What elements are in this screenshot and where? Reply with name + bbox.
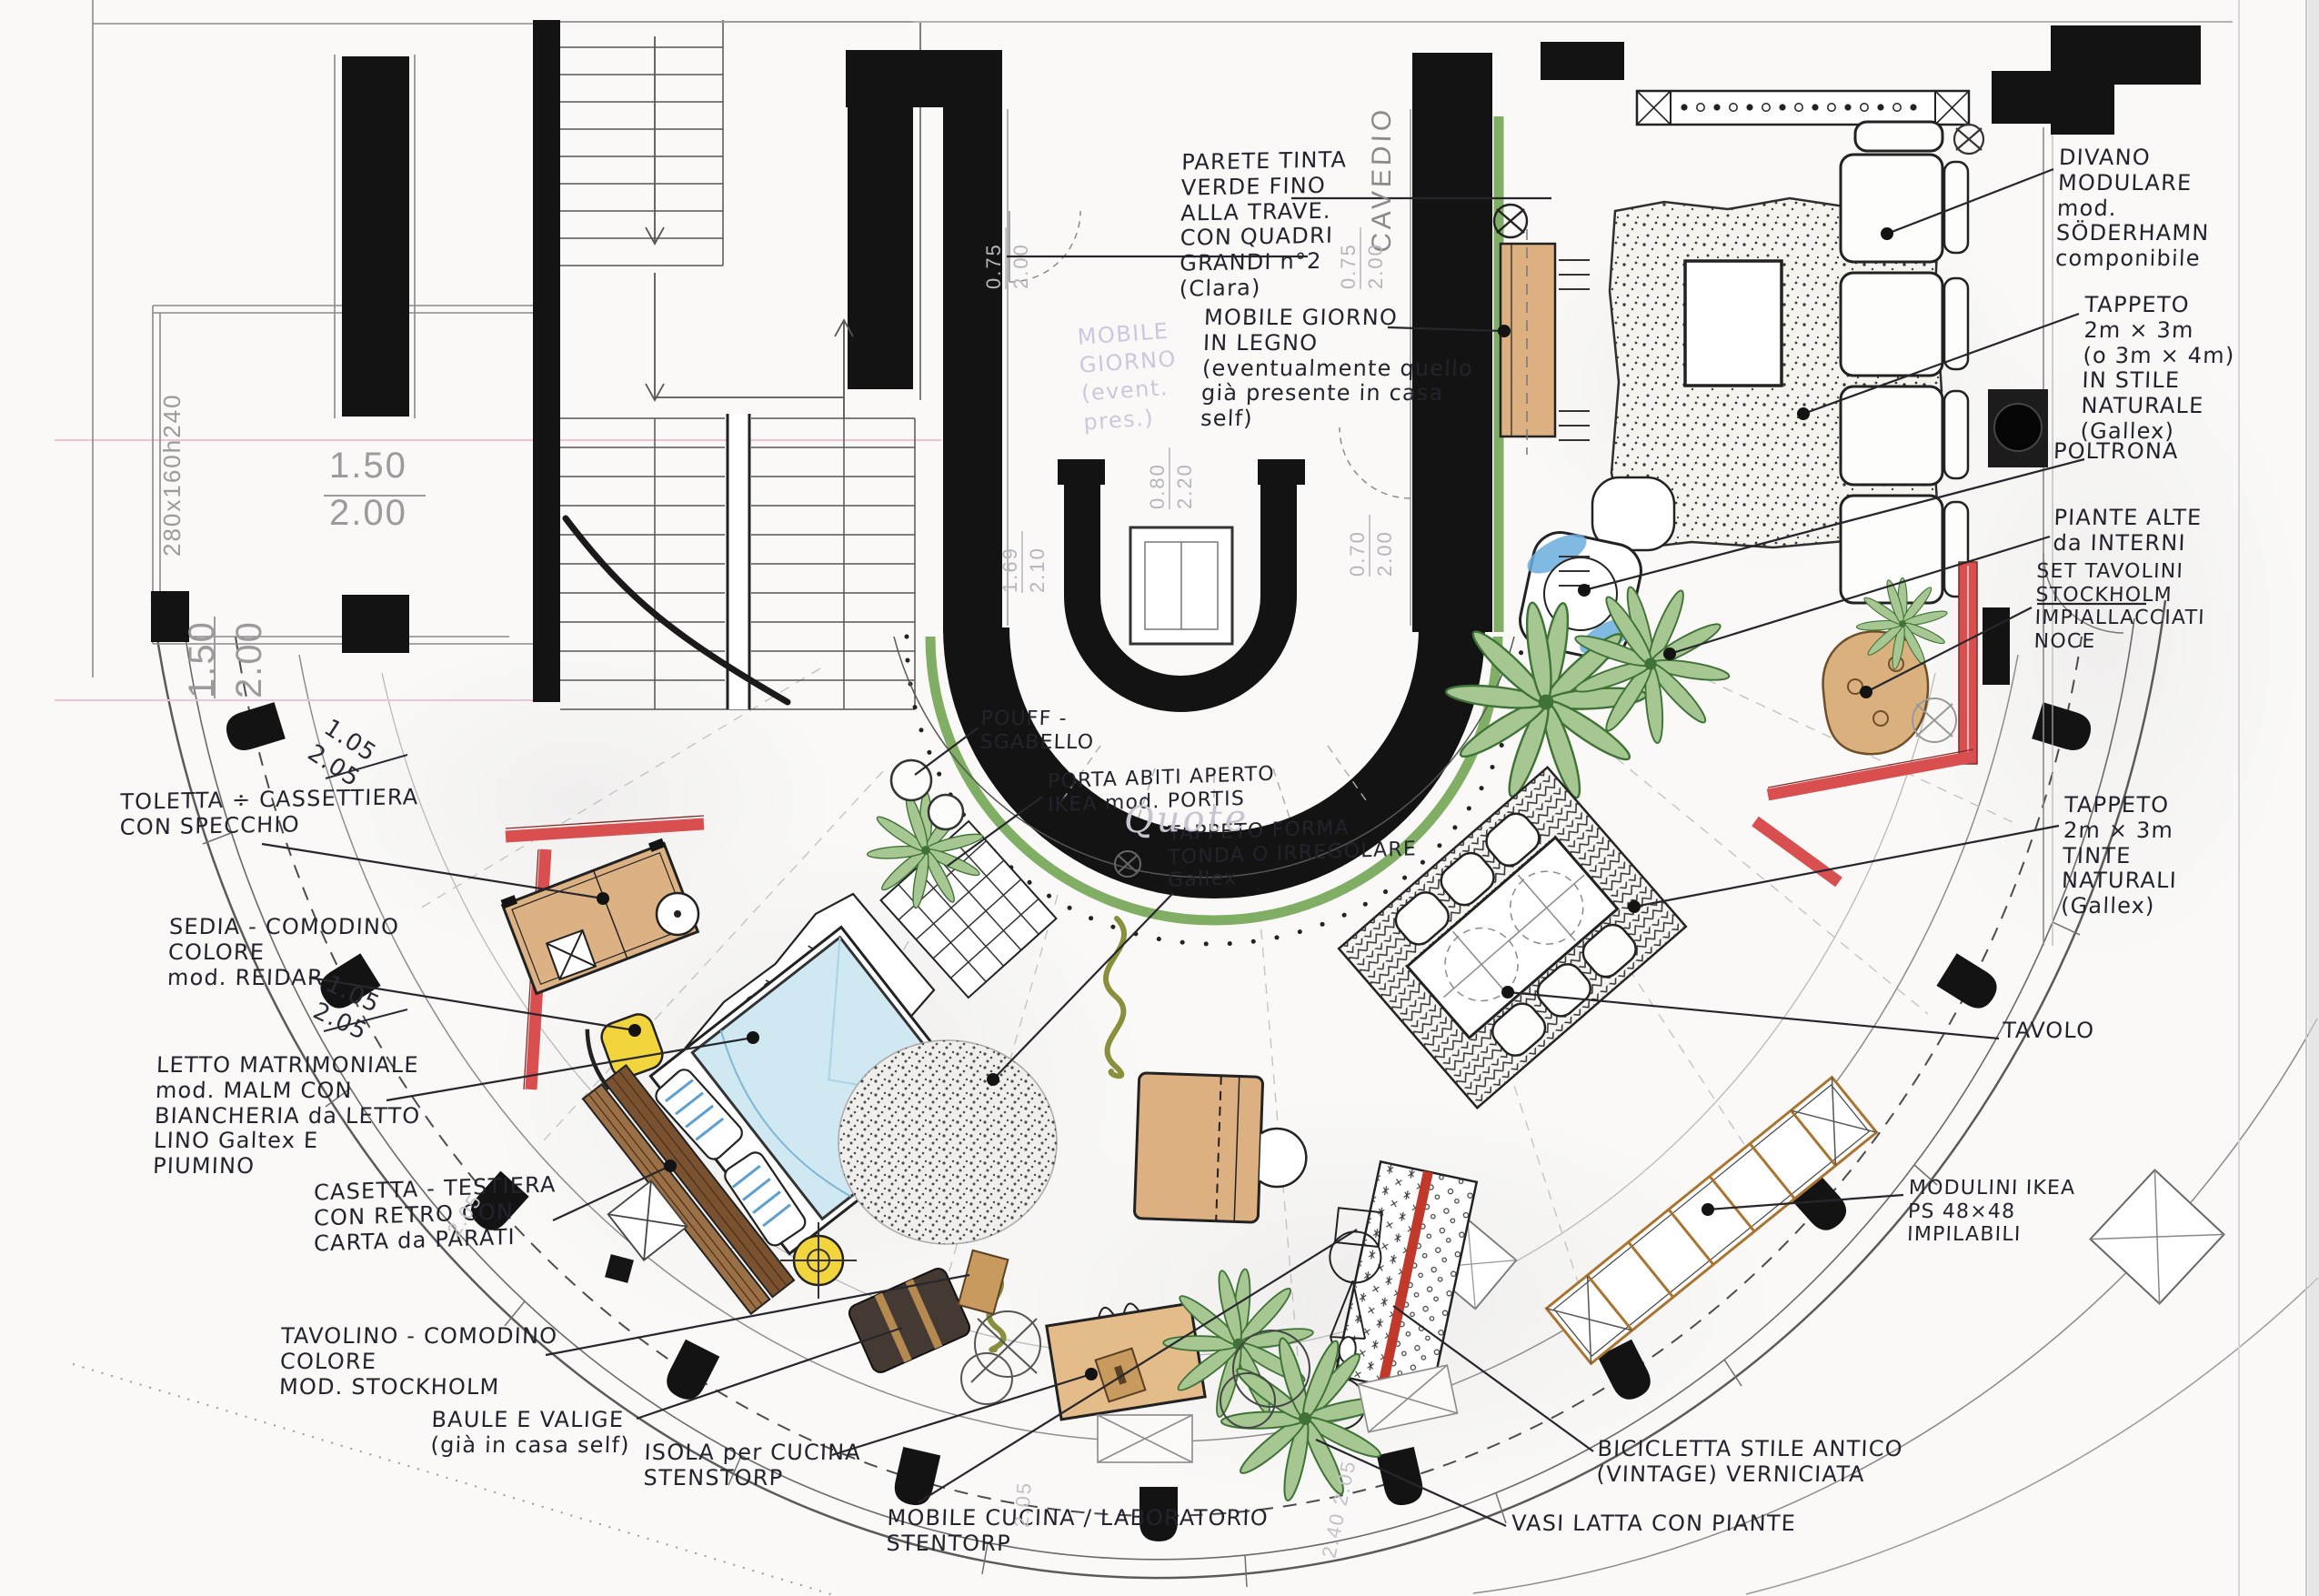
note-piante-alte: PIANTE ALTE da INTERNI <box>2053 506 2203 557</box>
note-sedia: SEDIA - COMODINO COLORE mod. REIDAR <box>167 915 400 990</box>
note-divano: DIVANO MODULARE mod. SÖDERHAMN componibi… <box>2055 146 2213 272</box>
note-tappeto-pranzo: TAPPETO 2m × 3m TINTE NATURALI (Gallex) <box>2061 793 2181 919</box>
dim-ghost-d: 0.70 2.00 <box>1344 530 1398 577</box>
round-rug <box>838 1040 1057 1244</box>
corner-wall <box>2051 25 2201 135</box>
ottoman <box>1592 477 1674 550</box>
note-ghost-erased: MOBILE GIORNO (event. pres.) <box>1077 316 1182 437</box>
dim-balcony: 280x160h240 <box>156 393 188 557</box>
watermark: Quote <box>1124 798 1250 841</box>
note-tappeto-soggiorno: TAPPETO 2m × 3m (o 3m × 4m) IN STILE NAT… <box>2080 293 2237 445</box>
dim-arc-b: 2.05 <box>1009 1481 1038 1529</box>
note-vasi: VASI LATTA CON PIANTE <box>1511 1511 1797 1537</box>
outlet-symbol-icon <box>1954 125 1983 154</box>
note-baule: BAULE E VALIGE (già in casa self) <box>430 1408 631 1459</box>
shelf-strip <box>1637 91 1969 125</box>
comodino-box <box>959 1250 1009 1314</box>
dim-ghost-e: 1.69 2.10 <box>997 547 1050 593</box>
note-bicicletta: BICICLETTA STILE ANTICO (VINTAGE) VERNIC… <box>1596 1437 1903 1488</box>
window-wall <box>93 0 551 698</box>
floor-plan-sheet: PARETE TINTA VERDE FINO ALLA TRAVE. CON … <box>0 0 2319 1596</box>
dim-ghost-a: 0.75 2.00 <box>980 243 1034 289</box>
note-isola: ISOLA per CUCINA STENSTORP <box>643 1440 861 1491</box>
wire-chair <box>961 1311 1040 1404</box>
note-casetta: CASETTA - TESTIERA CON RETRO CON CARTA d… <box>314 1172 556 1257</box>
dim-ghost-c: 0.80 2.20 <box>1144 463 1198 509</box>
note-poltrona: POLTRONA <box>2053 439 2180 465</box>
sofa <box>1841 122 1968 603</box>
note-toletta: TOLETTA ÷ CASSETTIERA CON SPECCHIO <box>120 785 419 840</box>
dim-ghost-b: 0.75 2.00 <box>1335 243 1389 289</box>
coffee-table <box>1685 261 1782 386</box>
dim-window-b: 1.50 2.00 <box>178 620 273 698</box>
kitchen-table <box>1134 1073 1309 1224</box>
note-tavolo: TAVOLO <box>2003 1019 2095 1044</box>
note-parete: PARETE TINTA VERDE FINO ALLA TRAVE. CON … <box>1180 147 1348 302</box>
stool-circle <box>929 795 963 829</box>
dim-window-a: 1.50 2.00 <box>329 442 407 537</box>
spiral-rack <box>1106 918 1124 1076</box>
note-tavolino: TAVOLINO - COMODINO COLORE MOD. STOCKHOL… <box>279 1324 558 1400</box>
note-modulini: MODULINI IKEA PS 48×48 IMPILABILI <box>1907 1177 2076 1247</box>
x-diamond <box>2091 1170 2224 1304</box>
staircase <box>533 20 920 709</box>
note-mobile-giorno: MOBILE GIORNO IN LEGNO (eventualmente qu… <box>1200 306 1476 432</box>
note-pouf: POUFF - SGABELLO <box>979 708 1095 754</box>
trunk <box>847 1266 973 1375</box>
wall-block <box>1992 71 2051 124</box>
note-set-tavolini: SET TAVOLINI STOCKHOLM IMPIALLACCIATI NO… <box>2033 560 2207 653</box>
note-mobile-cucina: MOBILE CUCINA / LABORATORIO STENTORP <box>886 1506 1269 1557</box>
note-letto: LETTO MATRIMONIALE mod. MALM CON BIANCHE… <box>153 1053 423 1179</box>
